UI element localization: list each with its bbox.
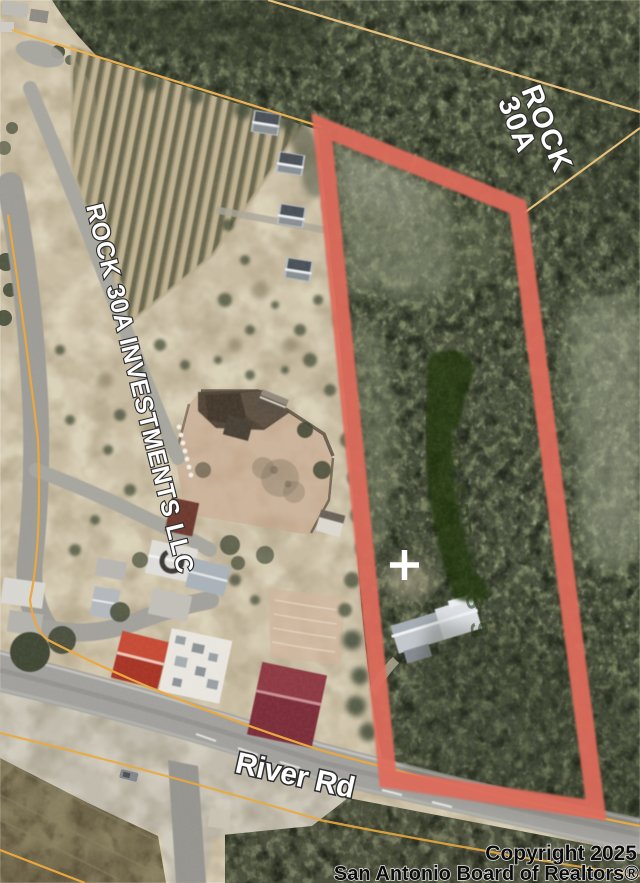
svg-text:San Antonio Board of Realtors®: San Antonio Board of Realtors®: [334, 863, 639, 883]
svg-text:Copyright 2025: Copyright 2025: [485, 842, 637, 865]
